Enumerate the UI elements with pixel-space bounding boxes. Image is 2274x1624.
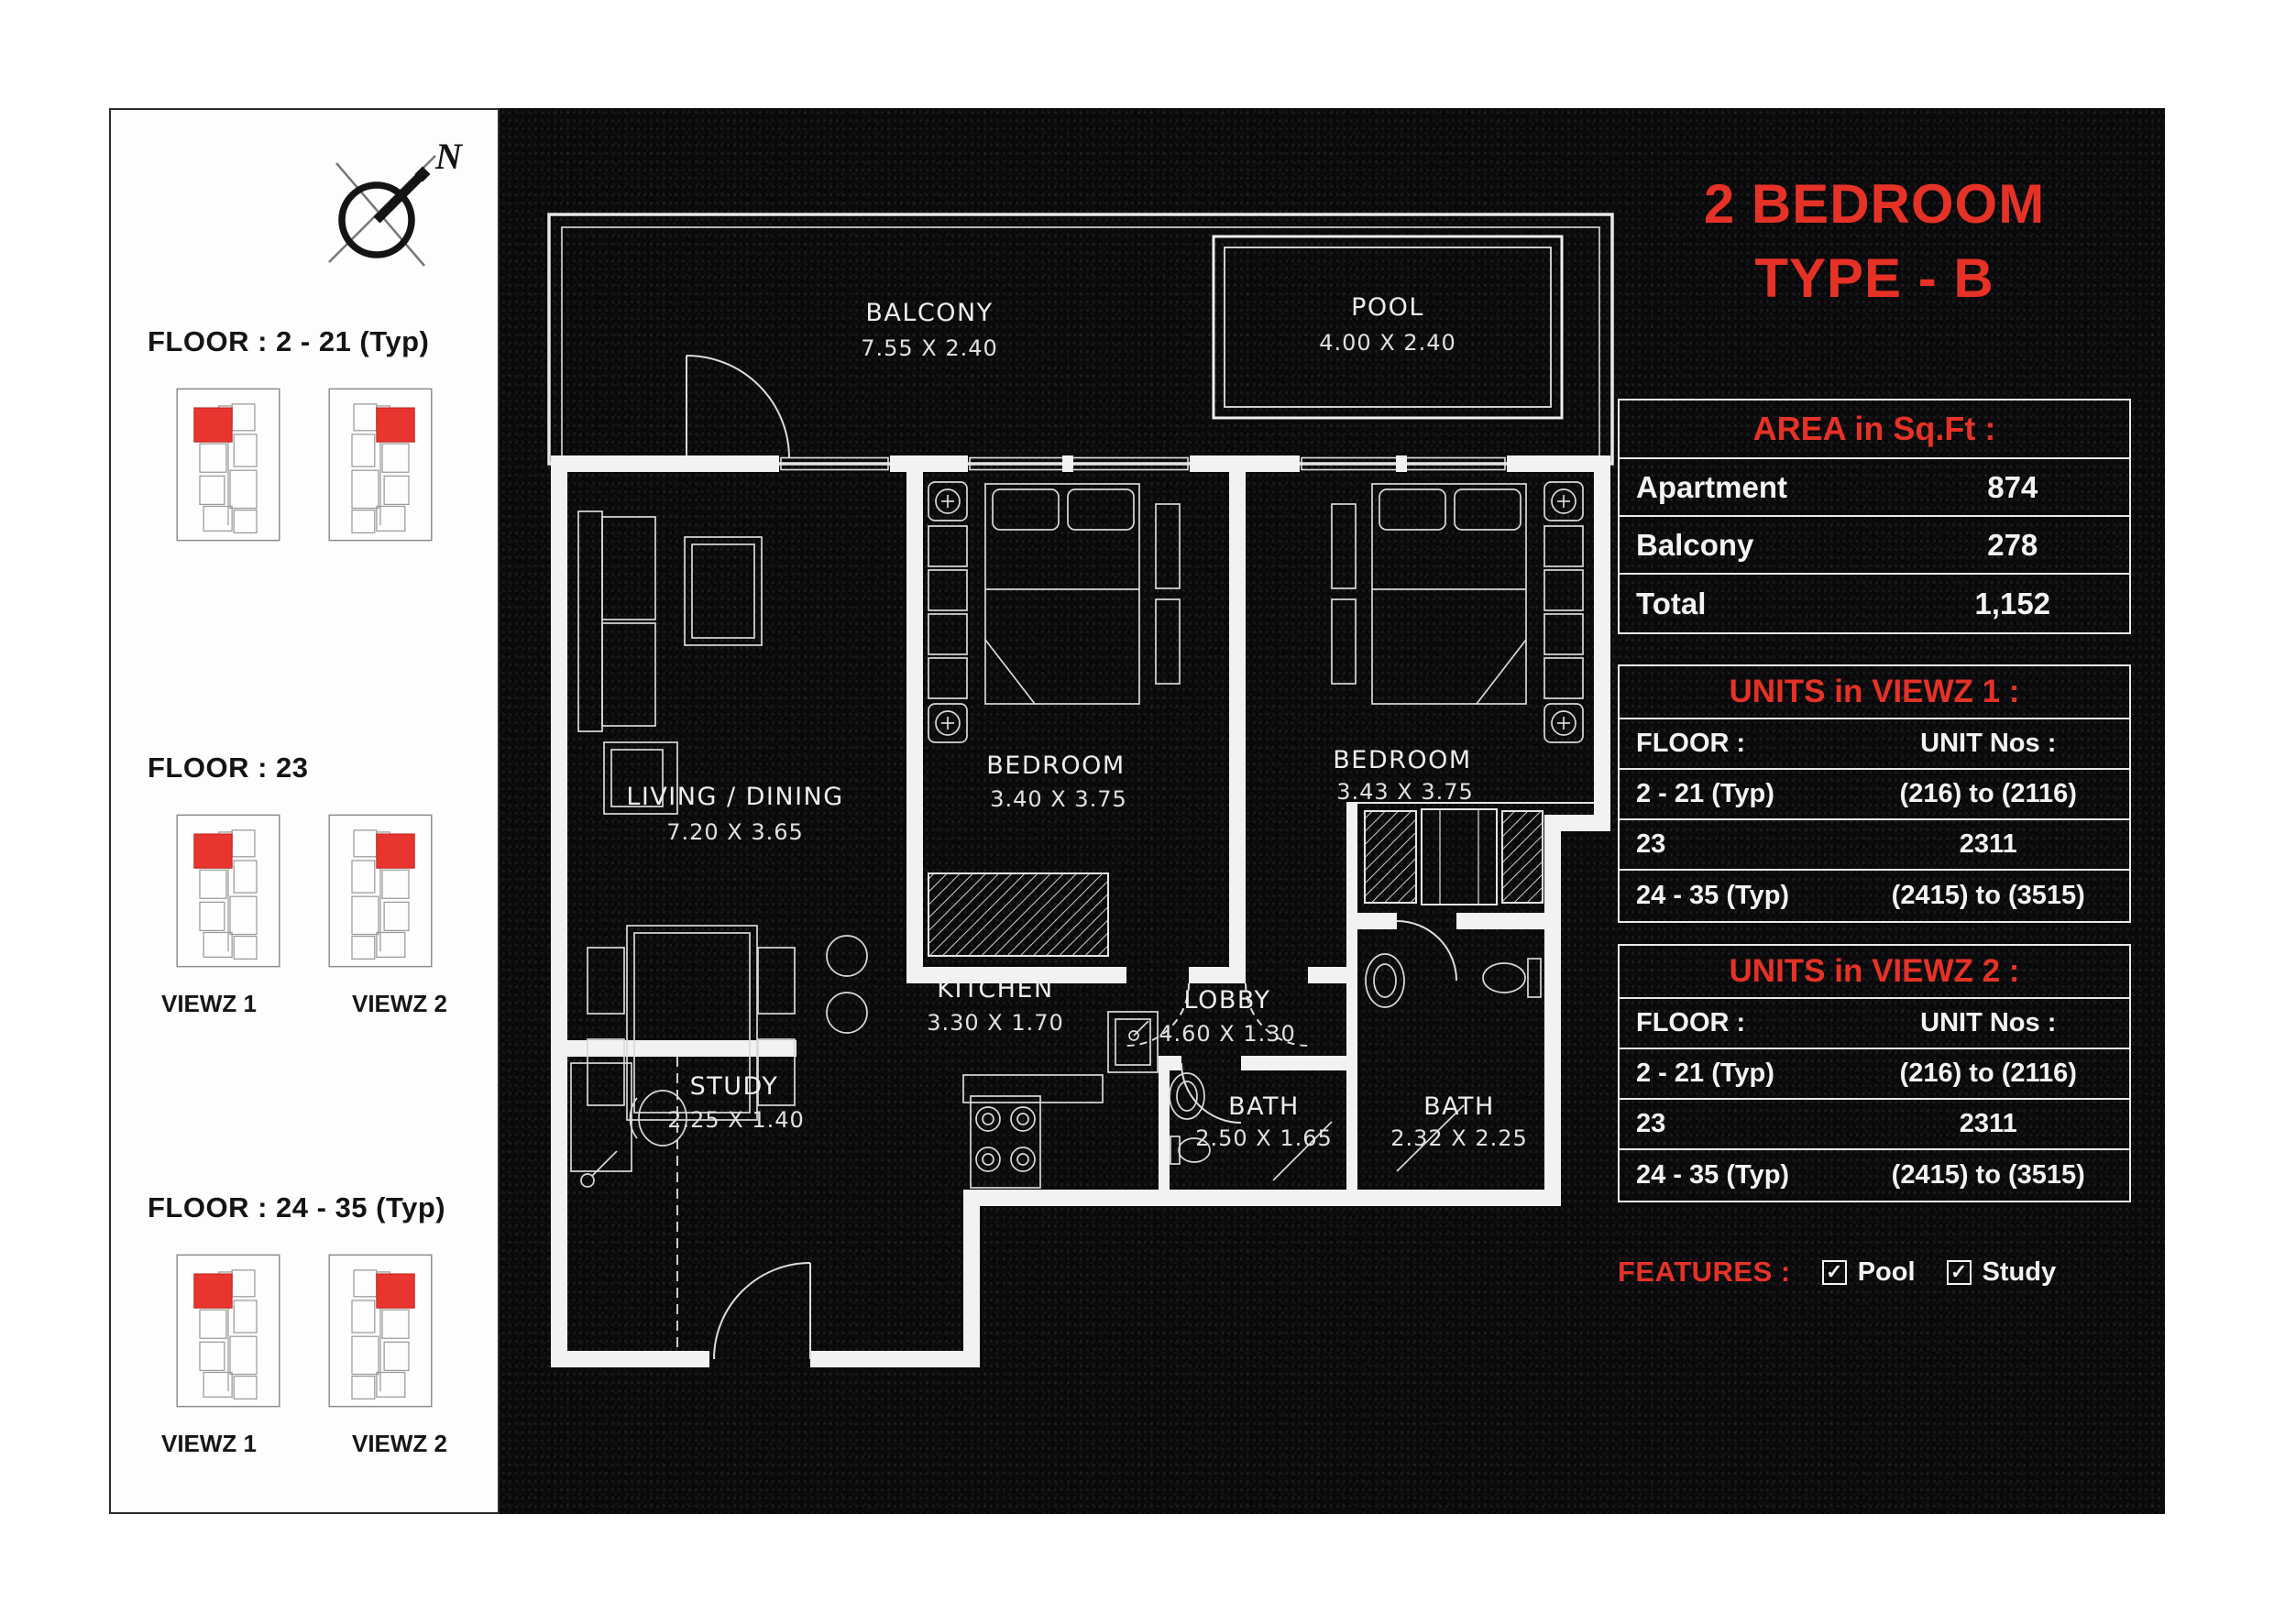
room-dims-living: 7.20 X 3.65 [666,819,804,845]
area-row-label: Total [1620,587,1904,621]
room-dims-bath1: 2.50 X 1.65 [1195,1125,1333,1151]
door-arcs [714,921,1456,1359]
area-row-value: 1,152 [1904,587,2130,621]
room-label-bedroom1: BEDROOM [986,752,1125,780]
pool-outline [1214,236,1562,418]
bedroom1-furniture [928,482,1180,742]
room-label-bath1: BATH [1228,1092,1300,1121]
area-row-value: 278 [1904,528,2130,563]
room-label-bedroom2: BEDROOM [1333,746,1471,774]
floor-cell: 23 [1620,829,1855,860]
area-row-label: Apartment [1620,470,1904,505]
area-row-value: 874 [1904,470,2130,505]
keyplan-mini-viewz2 [324,805,437,977]
room-dims-study: 2.25 X 1.40 [667,1107,805,1133]
page-title: 2 BEDROOM TYPE - B [1618,167,2131,315]
keyplan-floor-label: FLOOR : 2 - 21 (Typ) [111,325,498,358]
floor-cell: 24 - 35 (Typ) [1620,881,1855,911]
room-dims-lobby: 4.60 X 1.30 [1159,1021,1296,1047]
page-title-line1: 2 BEDROOM [1618,167,2131,241]
feature-pool: ✓ Pool [1822,1257,1916,1288]
bedroom2-furniture [1332,482,1583,742]
balcony-door [687,356,789,458]
room-label-pool: POOL [1351,293,1424,322]
keyplan-group-floor-2-21: FLOOR : 2 - 21 (Typ) [111,325,498,551]
table-row: 2 - 21 (Typ) (216) to (2116) [1620,770,2129,820]
room-label-lobby: LOBBY [1184,986,1271,1015]
units-cell: (216) to (2116) [1855,1059,2130,1089]
table-row: Total 1,152 [1620,575,2129,632]
room-label-bath2: BATH [1423,1092,1495,1121]
feature-label: Pool [1858,1257,1916,1288]
north-label: N [434,137,464,177]
units-cell: (2415) to (3515) [1855,881,2130,911]
viewz2-caption: VIEWZ 2 [343,990,456,1018]
room-label-living: LIVING / DINING [626,783,843,811]
room-dims-pool: 4.00 X 2.40 [1319,330,1456,356]
room-label-study: STUDY [690,1072,779,1101]
table-row: Apartment 874 [1620,459,2129,517]
keyplan-mini-viewz2 [324,1245,437,1417]
floor-cell: 24 - 35 (Typ) [1620,1160,1855,1191]
keyplan-mini-viewz1 [171,1245,285,1417]
col-floor: FLOOR : [1620,1008,1855,1038]
room-dims-bedroom2: 3.43 X 3.75 [1336,779,1474,805]
units-cell: 2311 [1855,1109,2130,1139]
area-table: AREA in Sq.Ft : Apartment 874 Balcony 27… [1618,399,2131,634]
area-table-header: AREA in Sq.Ft : [1620,401,2129,459]
checkbox-icon: ✓ [1947,1260,1972,1285]
col-units: UNIT Nos : [1855,1008,2130,1038]
units-viewz1-header: UNITS in VIEWZ 1 : [1620,666,2129,719]
table-row: 23 2311 [1620,820,2129,871]
floor-cell: 2 - 21 (Typ) [1620,1059,1855,1089]
table-row: Balcony 278 [1620,517,2129,575]
col-floor: FLOOR : [1620,729,1855,759]
feature-label: Study [1983,1257,2057,1288]
room-dims-bedroom1: 3.40 X 3.75 [990,786,1127,812]
room-dims-bath2: 2.32 X 2.25 [1390,1125,1528,1151]
closet-hatch [928,803,1594,956]
table-row: 24 - 35 (Typ) (2415) to (3515) [1620,871,2129,921]
leather-background: BALCONY 7.55 X 2.40 POOL 4.00 X 2.40 BED… [109,108,2165,1514]
units-cell: (2415) to (3515) [1855,1160,2130,1191]
north-arrow-icon: N [316,137,472,284]
floor-plan: BALCONY 7.55 X 2.40 POOL 4.00 X 2.40 BED… [540,126,1621,1373]
page-title-line2: TYPE - B [1618,241,2131,315]
features-row: FEATURES : ✓ Pool ✓ Study [1618,1256,2131,1289]
key-plan-sidebar: N [109,108,500,1514]
table-row: 23 2311 [1620,1100,2129,1150]
room-label-balcony: BALCONY [865,299,993,327]
keyplan-group-floor-23: FLOOR : 23 VIEWZ 1 VIEWZ 2 [111,752,498,1018]
table-row: 24 - 35 (Typ) (2415) to (3515) [1620,1150,2129,1201]
brochure-page: BALCONY 7.55 X 2.40 POOL 4.00 X 2.40 BED… [0,0,2274,1624]
floor-cell: 23 [1620,1109,1855,1139]
keyplan-mini-viewz2 [324,379,437,551]
room-dims-balcony: 7.55 X 2.40 [861,335,998,361]
floor-cell: 2 - 21 (Typ) [1620,779,1855,809]
keyplan-mini-viewz1 [171,379,285,551]
units-viewz2-table: UNITS in VIEWZ 2 : FLOOR : UNIT Nos : 2 … [1618,944,2131,1202]
units-cell: (216) to (2116) [1855,779,2130,809]
area-row-label: Balcony [1620,528,1904,563]
units-viewz2-header: UNITS in VIEWZ 2 : [1620,946,2129,999]
table-row: 2 - 21 (Typ) (216) to (2116) [1620,1049,2129,1100]
units-cell: 2311 [1855,829,2130,860]
features-label: FEATURES : [1618,1256,1791,1289]
keyplan-mini-viewz1 [171,805,285,977]
viewz1-caption: VIEWZ 1 [152,1430,266,1458]
units-column-headers: FLOOR : UNIT Nos : [1620,999,2129,1049]
checkbox-icon: ✓ [1822,1260,1847,1285]
room-dims-kitchen: 3.30 X 1.70 [927,1010,1064,1036]
keyplan-floor-label: FLOOR : 24 - 35 (Typ) [111,1191,498,1224]
keyplan-group-floor-24-35: FLOOR : 24 - 35 (Typ) VIEWZ 1 VIEWZ 2 [111,1191,498,1458]
viewz1-caption: VIEWZ 1 [152,990,266,1018]
keyplan-floor-label: FLOOR : 23 [111,752,498,785]
units-column-headers: FLOOR : UNIT Nos : [1620,719,2129,770]
col-units: UNIT Nos : [1855,729,2130,759]
room-label-kitchen: KITCHEN [937,975,1054,1004]
feature-study: ✓ Study [1947,1257,2057,1288]
units-viewz1-table: UNITS in VIEWZ 1 : FLOOR : UNIT Nos : 2 … [1618,664,2131,923]
living-furniture [578,511,795,1120]
viewz2-caption: VIEWZ 2 [343,1430,456,1458]
